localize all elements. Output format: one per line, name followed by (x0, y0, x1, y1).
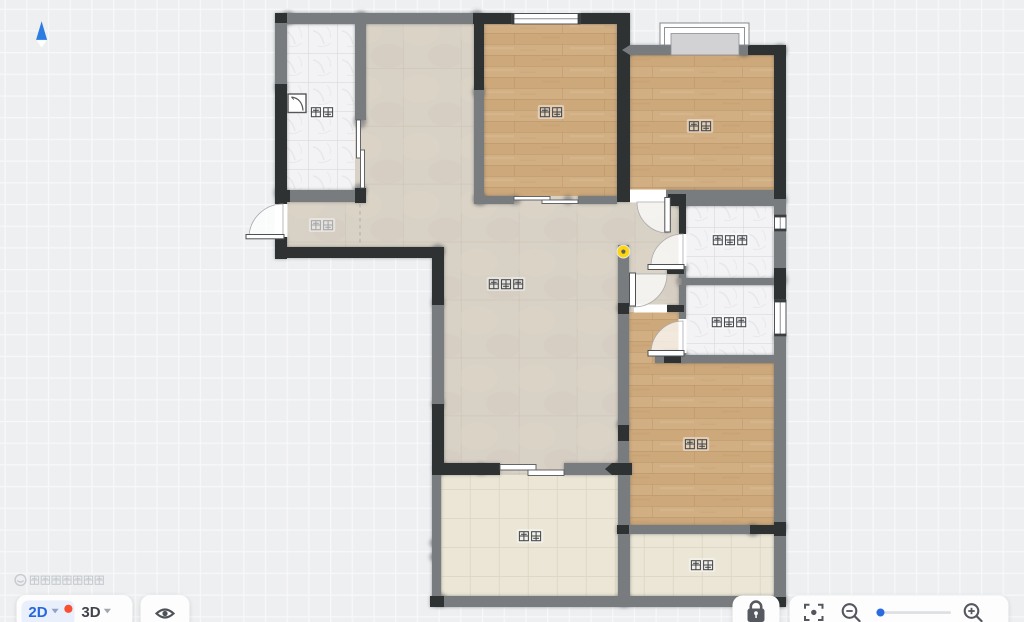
svg-text:2D: 2D (28, 604, 47, 621)
svg-text:3D: 3D (81, 604, 100, 621)
